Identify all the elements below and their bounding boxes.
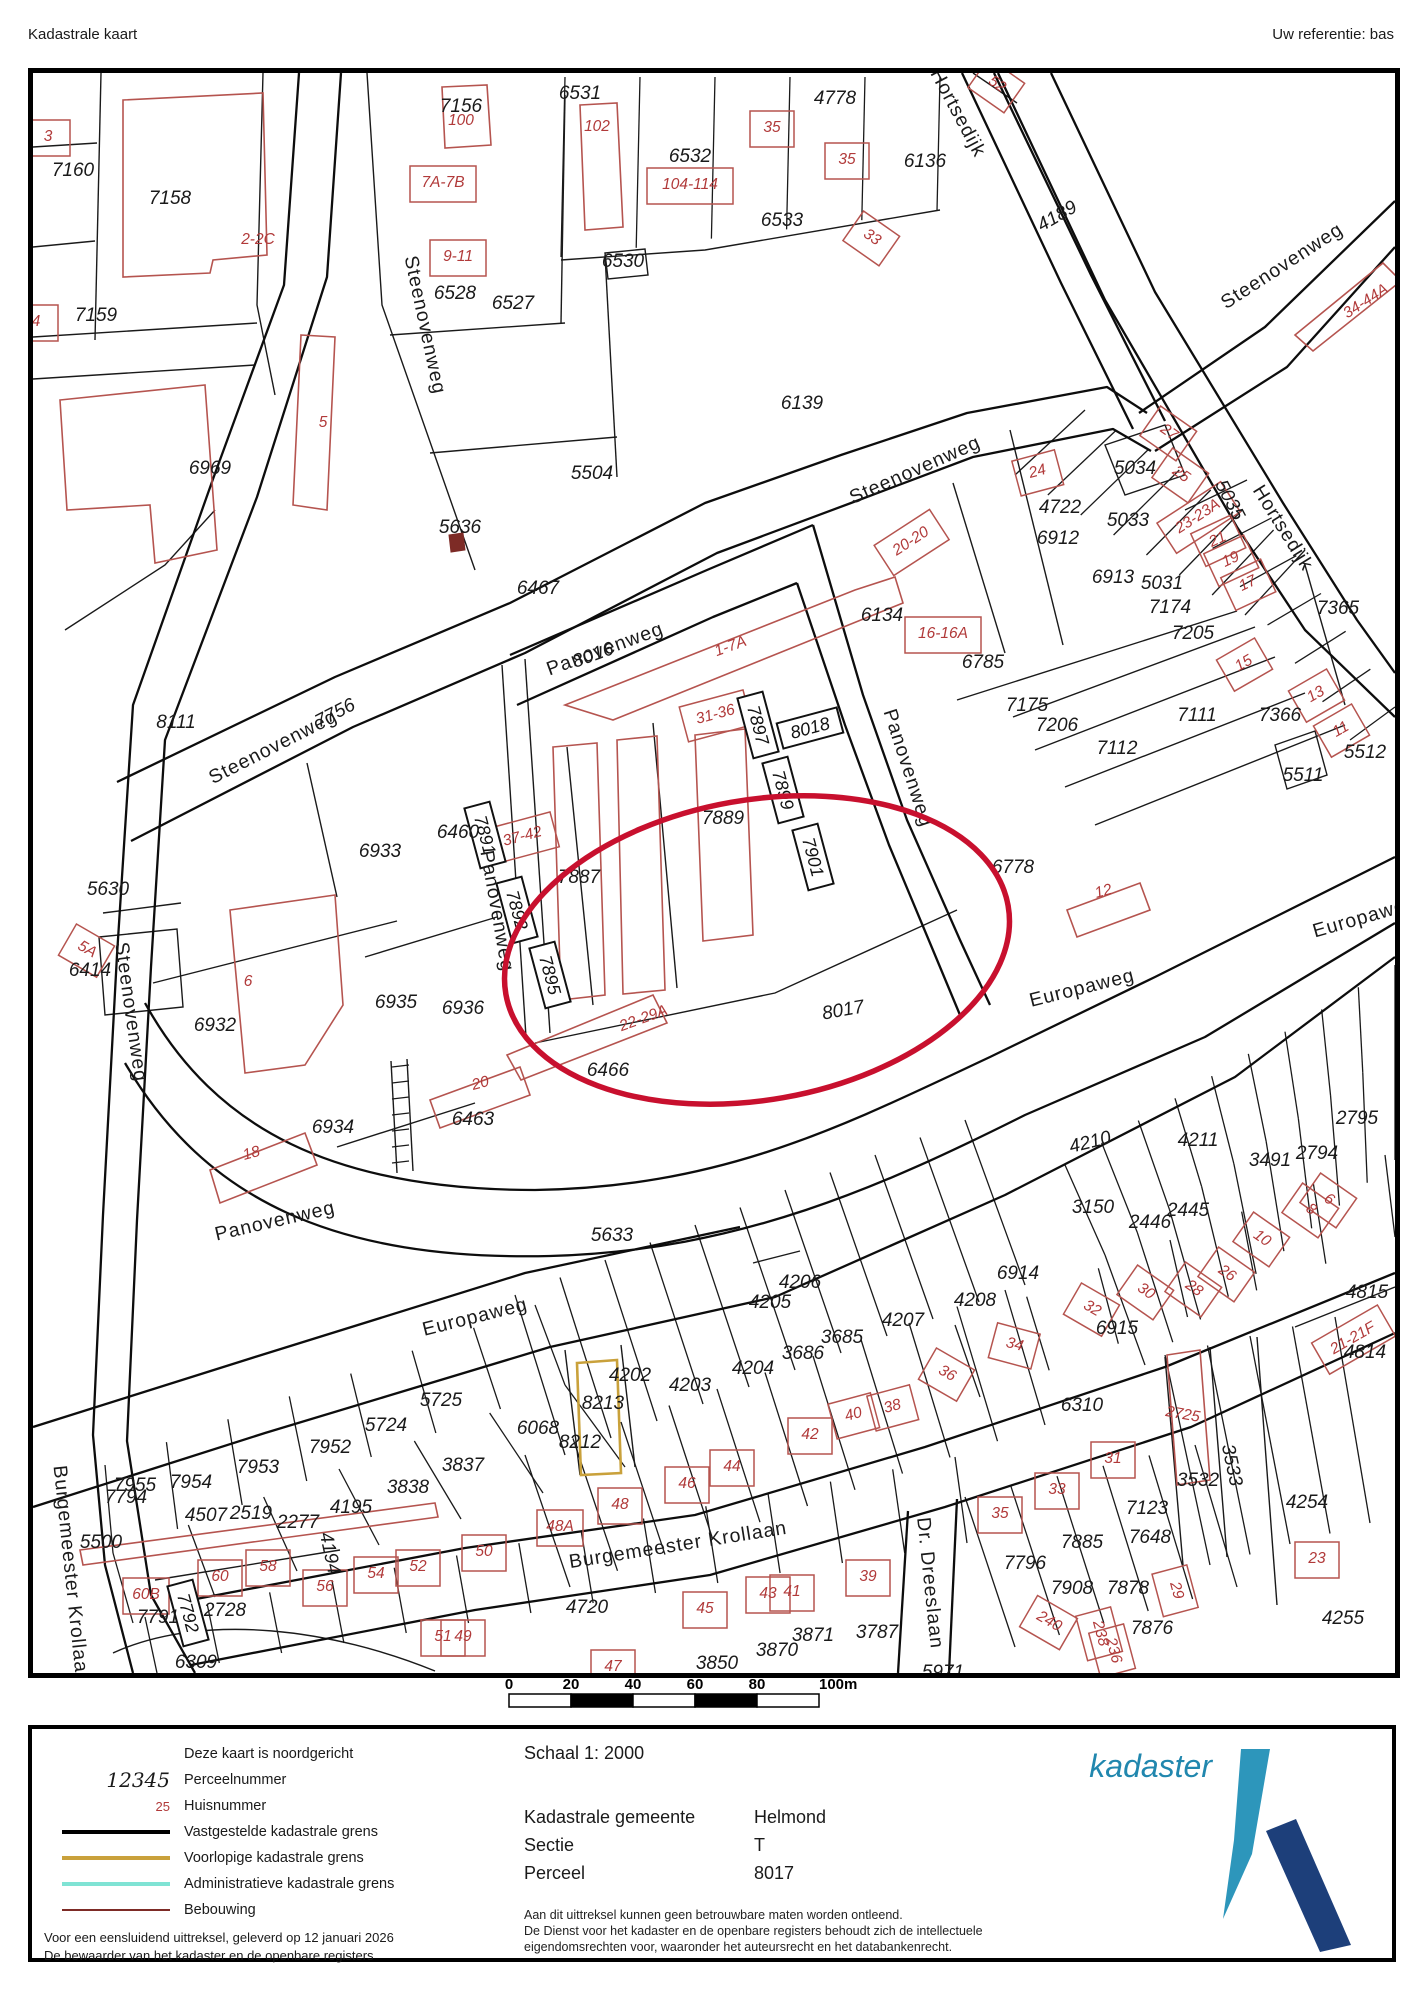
legend-line-swatch [62, 1882, 170, 1886]
page: Kadastrale kaart Uw referentie: bas 7891… [0, 0, 1414, 2000]
credits: Voor een eensluidend uittreksel, gelever… [44, 1929, 394, 1965]
parcel-label: 4204 [732, 1358, 774, 1379]
parcel-label: 6915 [1096, 1318, 1139, 1339]
parcel-label: 3532 [1177, 1470, 1220, 1491]
parcel-label: 6136 [904, 151, 947, 172]
parcel-label: 6463 [452, 1109, 495, 1130]
kadaster-logo: kadaster [1037, 1735, 1382, 1957]
house-number-label: 60B [132, 1586, 160, 1603]
parcel-label: 7952 [309, 1437, 352, 1458]
house-number-label: 35 [838, 151, 856, 168]
house-number-label: 104-114 [662, 176, 718, 193]
parcel-label: 6935 [375, 992, 418, 1013]
house-number-label: 51 [434, 1628, 451, 1645]
house-number-label: 44 [723, 1458, 741, 1475]
house-number-label: 23 [1307, 1550, 1326, 1567]
legend-row: Bebouwing [44, 1897, 394, 1923]
house-number-label: 54 [367, 1565, 385, 1582]
parcel-label: 7159 [75, 305, 118, 326]
legend-label: Voorlopige kadastrale grens [184, 1850, 364, 1866]
parcel-label: 3491 [1249, 1150, 1291, 1171]
parcel-label: 7160 [52, 160, 95, 181]
house-number-label: 16-16A [918, 625, 968, 642]
house-number-label: 47 [604, 1658, 623, 1673]
house-number-label: 7A-7B [421, 174, 464, 191]
legend-sample [44, 1830, 184, 1834]
house-number-label: 35 [991, 1505, 1009, 1522]
parcel-label: 4206 [779, 1272, 822, 1293]
reference-text: Uw referentie: bas [1272, 26, 1394, 43]
house-number-label: 41 [783, 1583, 800, 1600]
parcel-label: 5031 [1141, 573, 1183, 594]
parcel-label: 2446 [1128, 1212, 1172, 1233]
legend-row: Deze kaart is noordgericht [44, 1741, 394, 1767]
scale-label: Schaal 1: 2000 [524, 1743, 644, 1763]
parcel-label: 4507 [185, 1505, 229, 1526]
parcel-label: 4254 [1286, 1492, 1328, 1513]
scale-tick: 20 [563, 1676, 580, 1693]
house-number-label: 48 [611, 1496, 629, 1513]
house-number-label: 43 [759, 1585, 777, 1602]
parcel-label: 7889 [702, 808, 745, 829]
house-number-label: 52 [409, 1558, 427, 1575]
house-number-label: 42 [801, 1426, 819, 1443]
house-number-label: 45 [696, 1600, 714, 1617]
parcel-label: 8213 [582, 1393, 625, 1414]
legend-line-swatch [62, 1830, 170, 1834]
legend: Deze kaart is noordgericht12345Perceelnu… [44, 1741, 394, 1923]
parcel-label: 5724 [365, 1415, 407, 1436]
parcel-label: 7908 [1051, 1578, 1094, 1599]
parcel-label: 2277 [276, 1512, 321, 1533]
parcel-label: 5636 [439, 517, 482, 538]
parcel-label: 4205 [749, 1292, 792, 1313]
parcel-label: 4778 [814, 88, 857, 109]
parcel-label: 3871 [792, 1625, 834, 1646]
parcel-label: 7648 [1129, 1527, 1172, 1548]
parcel-label: 7174 [1149, 597, 1191, 618]
scale-tick: 40 [625, 1676, 642, 1693]
parcel-label: 4203 [669, 1375, 712, 1396]
parcel-label: 6914 [997, 1263, 1039, 1284]
parcel-label: 6460 [437, 822, 480, 843]
scale-tick: 100m [819, 1676, 857, 1693]
scale-segment [695, 1694, 757, 1707]
house-number-label: 100 [448, 112, 474, 129]
house-number-label: 58 [259, 1558, 277, 1575]
scale-segment [571, 1694, 633, 1707]
house-number-label: 49 [454, 1628, 472, 1645]
parcel-label: 8111 [156, 712, 195, 733]
house-number-label: 56 [316, 1578, 334, 1595]
house-number-label: 9-11 [443, 248, 473, 265]
parcel-label: 6785 [962, 652, 1005, 673]
parcel-label: 5034 [1114, 458, 1156, 479]
document-title: Kadastrale kaart [28, 26, 137, 43]
parcel-label: 6527 [492, 293, 536, 314]
legend-sample [44, 1882, 184, 1886]
parcel-label: 7111 [1177, 705, 1216, 726]
parcel-label: 7158 [149, 188, 192, 209]
disclaimer-line: De Dienst voor het kadaster en de openba… [524, 1923, 983, 1939]
parcel-label: 7885 [1061, 1532, 1104, 1553]
parcel-label: 5033 [1107, 510, 1150, 531]
house-number-label: 6 [244, 973, 253, 990]
parcel-label: 2728 [203, 1600, 247, 1621]
parcel-label: 7794 [105, 1487, 147, 1508]
logo-mark-dark [1266, 1819, 1351, 1952]
parcel-label: 6467 [517, 578, 561, 599]
parcel-label: 7791 [137, 1607, 179, 1628]
parcel-label: 4208 [954, 1290, 997, 1311]
house-number-label: 5 [319, 414, 328, 431]
info-key: Perceel [524, 1863, 754, 1891]
parcel-label: 5630 [87, 879, 130, 900]
parcel-label: 6913 [1092, 567, 1135, 588]
house-number-label: 102 [584, 118, 610, 135]
parcel-label: 7954 [170, 1472, 212, 1493]
parcel-label: 5512 [1344, 742, 1387, 763]
disclaimer-line: eigendomsrechten voor, waaronder het aut… [524, 1939, 983, 1955]
parcel-label: 5725 [420, 1390, 463, 1411]
disclaimer-line: Aan dit uittreksel kunnen geen betrouwba… [524, 1907, 983, 1923]
scale-tick: 60 [687, 1676, 704, 1693]
legend-row: 25Huisnummer [44, 1793, 394, 1819]
legend-row: Vastgestelde kadastrale grens [44, 1819, 394, 1845]
parcel-label: 6969 [189, 458, 232, 479]
parcel-label: 3685 [821, 1327, 864, 1348]
parcel-info-table: Kadastrale gemeenteHelmond SectieT Perce… [524, 1807, 826, 1891]
legend-row: 12345Perceelnummer [44, 1767, 394, 1793]
house-number-label: 46 [678, 1475, 696, 1492]
parcel-label: 3787 [856, 1622, 900, 1643]
parcel-label: 4720 [566, 1597, 609, 1618]
parcel-label: 6531 [559, 83, 601, 104]
parcel-label: 7112 [1097, 738, 1138, 759]
logo-mark-light [1223, 1749, 1270, 1919]
legend-label: Deze kaart is noordgericht [184, 1746, 353, 1762]
scale-segment [509, 1694, 571, 1707]
parcel-label: 6936 [442, 998, 485, 1019]
parcel-label: 6139 [781, 393, 824, 414]
scale-segment [757, 1694, 819, 1707]
parcel-label: 8212 [559, 1432, 602, 1453]
parcel-label: 3870 [756, 1640, 799, 1661]
credit-line: De bewaarder van het kadaster en de open… [44, 1947, 394, 1965]
legend-sample [44, 1856, 184, 1860]
parcel-label: 5504 [571, 463, 613, 484]
parcel-label: 2445 [1166, 1200, 1210, 1221]
cadastral-map: 78917892789578977899790180187792Steenove… [28, 68, 1400, 1678]
logo-text: kadaster [1089, 1748, 1213, 1784]
parcel-label: 3686 [782, 1343, 825, 1364]
parcel-label: 4211 [1178, 1130, 1219, 1151]
parcel-label: 7365 [1317, 598, 1360, 619]
parcel-label: 7206 [1036, 715, 1079, 736]
parcel-label: 6414 [69, 960, 111, 981]
parcel-label: 6532 [669, 146, 712, 167]
parcel-label: 6310 [1061, 1395, 1104, 1416]
disclaimer: Aan dit uittreksel kunnen geen betrouwba… [524, 1907, 983, 1955]
legend-label: Vastgestelde kadastrale grens [184, 1824, 378, 1840]
parcel-label: 7366 [1259, 705, 1302, 726]
house-number-label: 50 [475, 1543, 493, 1560]
credit-line: Voor een eensluidend uittreksel, gelever… [44, 1929, 394, 1947]
parcel-label: 7796 [1004, 1553, 1047, 1574]
parcel-label: 5633 [591, 1225, 634, 1246]
parcel-label: 6912 [1037, 528, 1080, 549]
scale-bar: 020406080100m [495, 1676, 875, 1716]
parcel-label: 6528 [434, 283, 477, 304]
parcel-label: 7878 [1107, 1578, 1150, 1599]
parcel-label: 2795 [1335, 1108, 1379, 1129]
legend-sample: 25 [44, 1799, 184, 1814]
info-value: T [754, 1835, 765, 1863]
legend-sample: 12345 [44, 1768, 184, 1792]
parcel-label: 7175 [1006, 695, 1049, 716]
info-key: Kadastrale gemeente [524, 1807, 754, 1835]
parcel-label: 5500 [80, 1532, 123, 1553]
parcel-label: 6932 [194, 1015, 237, 1036]
scale-tick: 0 [505, 1676, 513, 1693]
parcel-label: 6309 [175, 1652, 218, 1673]
house-number-label: 39 [859, 1568, 877, 1585]
house-number-label: 4 [33, 313, 41, 330]
scale-tick: 80 [749, 1676, 766, 1693]
parcel-label: 7876 [1131, 1618, 1174, 1639]
parcel-label: 6530 [602, 251, 645, 272]
parcel-label: 3850 [696, 1653, 739, 1673]
parcel-label: 6533 [761, 210, 804, 231]
house-number-label: 3 [44, 128, 53, 145]
parcel-label: 5971 [922, 1662, 964, 1673]
map-background [33, 73, 1395, 1673]
parcel-label: 4815 [1346, 1282, 1389, 1303]
info-value: 8017 [754, 1863, 794, 1891]
house-number-label: 33 [1048, 1481, 1066, 1498]
parcel-label: 4722 [1039, 497, 1082, 518]
house-number-label: 2-2C [240, 231, 275, 248]
parcel-label: 4195 [330, 1497, 373, 1518]
parcel-label: 3150 [1072, 1197, 1115, 1218]
parcel-label: 6134 [861, 605, 903, 626]
parcel-label: 3838 [387, 1477, 430, 1498]
legend-label: Bebouwing [184, 1902, 256, 1918]
parcel-label: 4255 [1322, 1608, 1365, 1629]
parcel-label: 6933 [359, 841, 402, 862]
footer-panel: Deze kaart is noordgericht12345Perceelnu… [28, 1725, 1396, 1962]
parcel-label: 6466 [587, 1060, 630, 1081]
parcel-label: 5511 [1283, 765, 1324, 786]
legend-row: Administratieve kadastrale grens [44, 1871, 394, 1897]
parcel-label: 3837 [442, 1455, 486, 1476]
parcel-label: 4207 [882, 1310, 926, 1331]
scale-segment [633, 1694, 695, 1707]
legend-row: Voorlopige kadastrale grens [44, 1845, 394, 1871]
house-number-label: 48A [546, 1518, 574, 1535]
info-value: Helmond [754, 1807, 826, 1835]
parcel-label: 2794 [1295, 1143, 1338, 1164]
parcel-label: 2519 [229, 1503, 273, 1524]
legend-line-swatch [62, 1909, 170, 1911]
info-key: Sectie [524, 1835, 754, 1863]
legend-parcelnumber-sample: 12345 [106, 1768, 170, 1792]
map-canvas: 78917892789578977899790180187792Steenove… [33, 73, 1395, 1673]
house-number-label: 31 [1104, 1450, 1121, 1467]
parcel-label: 6068 [517, 1418, 560, 1439]
parcel-label: 7123 [1126, 1498, 1169, 1519]
parcel-label: 7953 [237, 1457, 280, 1478]
legend-label: Administratieve kadastrale grens [184, 1876, 394, 1892]
scale-text: Schaal 1: 2000 [524, 1743, 644, 1764]
parcel-label: 6934 [312, 1117, 354, 1138]
parcel-label: 7205 [1172, 623, 1215, 644]
legend-sample [44, 1909, 184, 1911]
legend-label: Huisnummer [184, 1798, 266, 1814]
legend-label: Perceelnummer [184, 1772, 286, 1788]
legend-line-swatch [62, 1856, 170, 1860]
parcel-label: 4202 [609, 1365, 652, 1386]
house-number-label: 60 [211, 1568, 229, 1585]
legend-housenumber-sample: 25 [156, 1799, 170, 1814]
house-number-label: 35 [763, 119, 781, 136]
